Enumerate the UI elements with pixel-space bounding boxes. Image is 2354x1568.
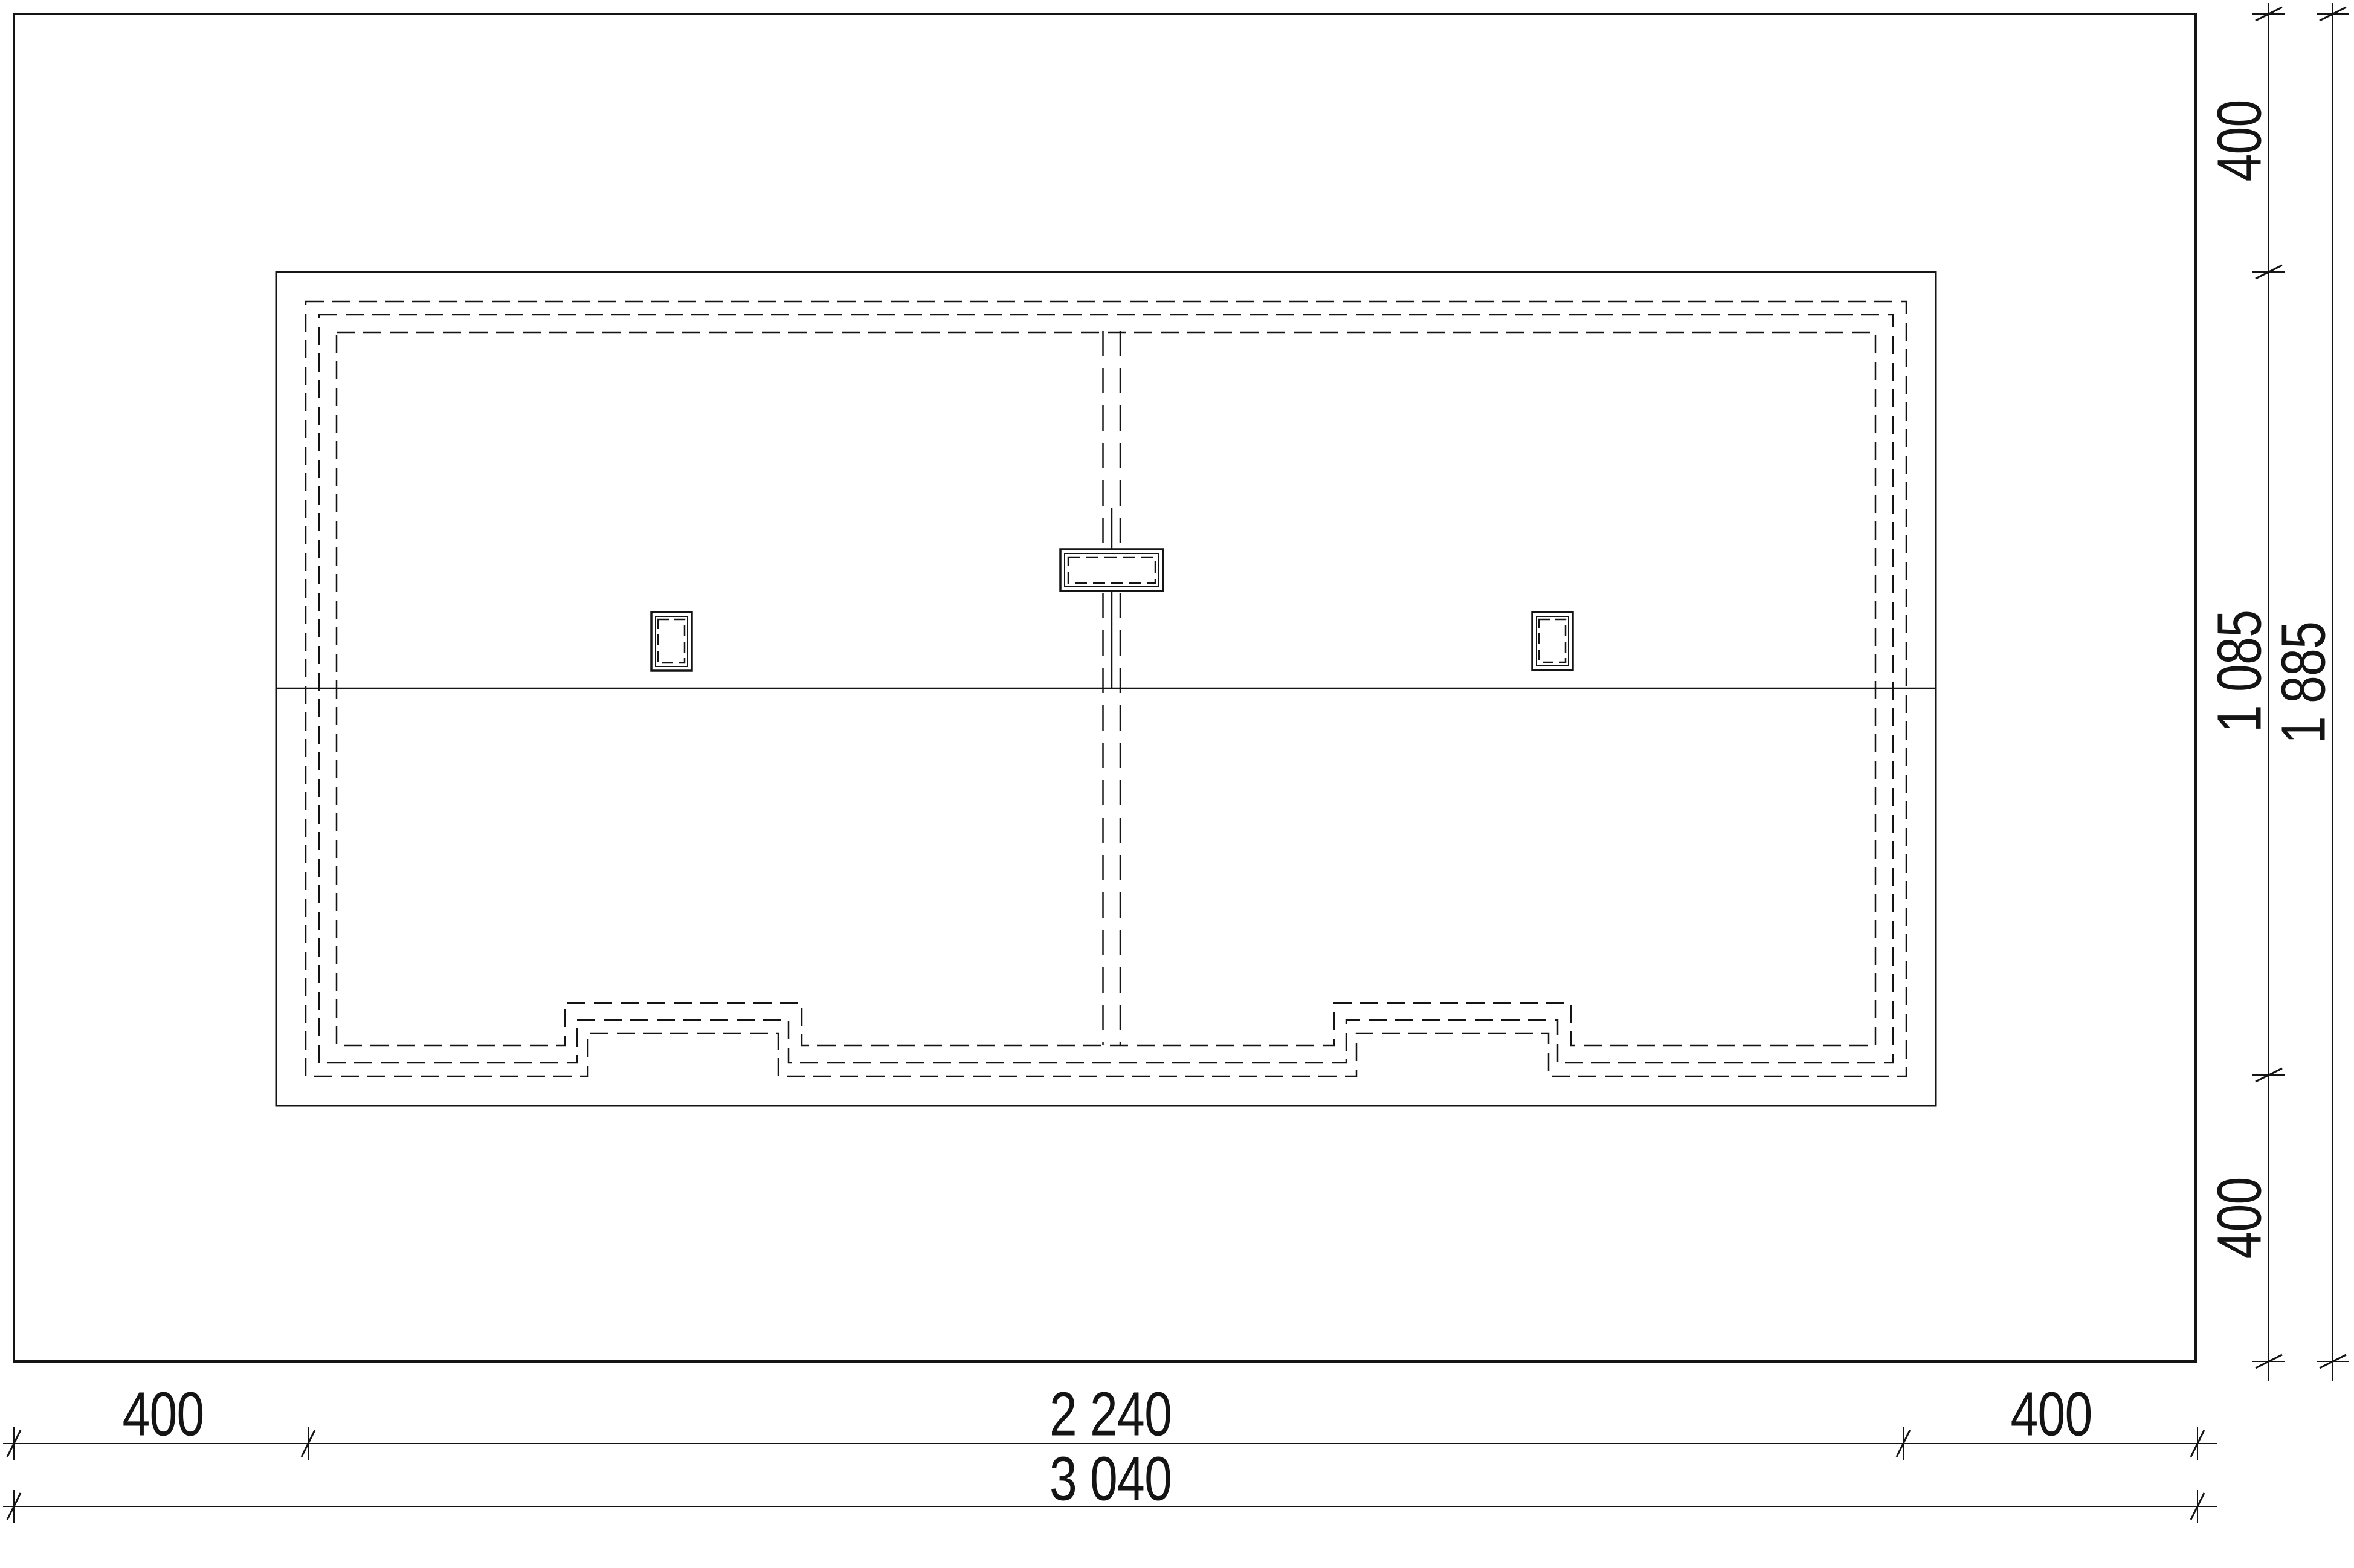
roof-plan-drawing: 400 2 240 400 3 040 400 1 085 400 1 885 xyxy=(0,0,2354,1568)
dim-label-bottom-right-400: 400 xyxy=(2010,1383,2092,1445)
chimney-left xyxy=(651,612,692,671)
chimney-center-outer xyxy=(1060,549,1163,591)
dim-label-bottom-left-400: 400 xyxy=(122,1383,204,1445)
dim-label-right-total-1885: 1 885 xyxy=(2272,622,2335,744)
chimney-right xyxy=(1532,612,1573,670)
chimney-center xyxy=(1060,549,1163,591)
dim-label-right-bottom-400: 400 xyxy=(2208,1177,2271,1259)
dim-label-bottom-total-3040: 3 040 xyxy=(1050,1448,1172,1510)
dim-label-right-top-400: 400 xyxy=(2208,100,2271,181)
dim-label-right-middle-1085: 1 085 xyxy=(2208,610,2271,732)
roof-plan-linework xyxy=(0,0,2354,1568)
dim-label-bottom-middle-2240: 2 240 xyxy=(1050,1383,1172,1445)
